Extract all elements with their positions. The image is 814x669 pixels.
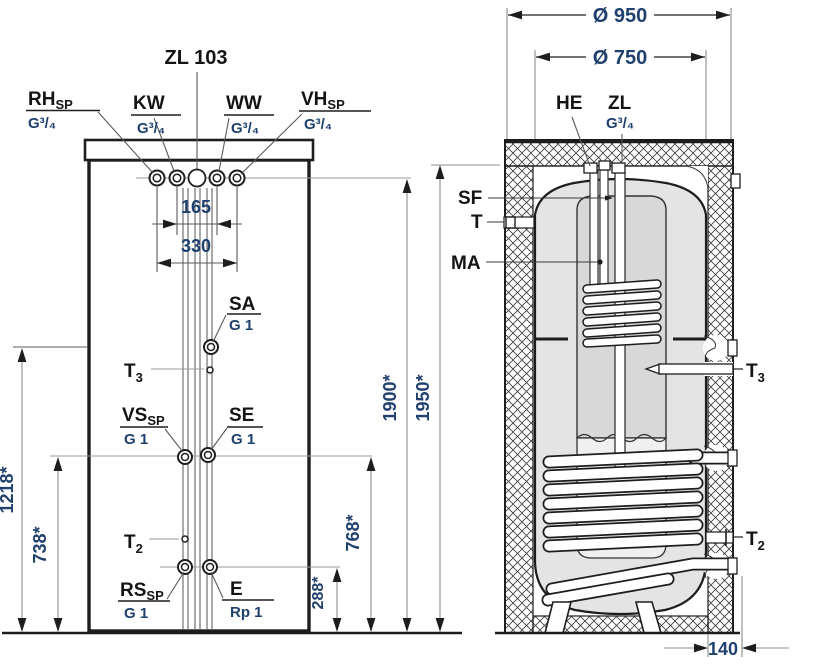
connection-se (201, 448, 215, 462)
dim-738: 738* (30, 526, 50, 563)
dim-140: 140 (708, 639, 738, 659)
connection-sa (204, 340, 218, 354)
dim-330: 330 (181, 236, 211, 256)
front-tank-lid (85, 140, 313, 160)
label-vs-size: G 1 (124, 431, 148, 448)
sensor-t3-front (207, 367, 213, 373)
fitting-coil-top (728, 450, 737, 466)
connection-kw (170, 171, 185, 186)
fitting-mid-right (728, 340, 737, 356)
label-rh-size: G³/₄ (28, 115, 56, 132)
dim-288: 288* (310, 576, 327, 610)
label-rs-size: G 1 (124, 605, 148, 622)
insulation-left (505, 166, 533, 633)
dim-1900: 1900* (380, 374, 400, 421)
label-t2-section: T2 (746, 529, 765, 553)
label-rh-sp: RHSP (28, 89, 73, 112)
connection-rh-sp (150, 171, 165, 186)
label-ww-size: G³/₄ (231, 120, 259, 137)
connection-ww (210, 171, 225, 186)
dim-750: Ø 750 (593, 47, 647, 69)
label-ma: MA (451, 253, 481, 274)
label-vh-sp: VHSP (301, 89, 345, 112)
storage-tank-diagram: ZL 103 RHSP G³/₄ KW G³/₄ WW G³/₄ VHSP G³… (0, 0, 814, 669)
fitting-top-right (731, 174, 740, 188)
label-he: HE (556, 93, 582, 114)
t3-probe (646, 364, 733, 374)
label-se: SE (229, 405, 254, 426)
he-pipe-2 (600, 170, 608, 286)
connection-e (203, 560, 217, 574)
he-pipe-1 (590, 170, 598, 286)
dim-1950: 1950* (413, 374, 433, 421)
dim-950: Ø 950 (593, 5, 647, 27)
label-sf: SF (458, 188, 482, 209)
dim-768: 768* (343, 514, 363, 551)
t-pocket (504, 217, 534, 228)
sensor-t2-front (182, 536, 188, 542)
label-e-size: Rp 1 (230, 604, 263, 621)
label-kw: KW (133, 93, 165, 114)
insulation-top (505, 140, 733, 166)
front-tank-body (89, 160, 309, 631)
dim-165: 165 (181, 197, 211, 217)
fitting-coil-bottom (728, 558, 737, 574)
connection-vs-sp (178, 450, 192, 464)
diagram-canvas: ZL 103 RHSP G³/₄ KW G³/₄ WW G³/₄ VHSP G³… (0, 0, 814, 669)
label-se-size: G 1 (231, 431, 255, 448)
section-view: HE ZL G³/₄ SF T MA T3 T2 Ø (451, 5, 789, 659)
label-kw-size: G³/₄ (137, 120, 165, 137)
label-zl: ZL (608, 93, 632, 114)
label-sa: SA (229, 294, 256, 315)
label-vh-size: G³/₄ (304, 116, 332, 133)
label-t: T (471, 212, 483, 233)
connection-rs-sp (178, 560, 192, 574)
label-zl103: ZL 103 (165, 47, 228, 69)
dim-1218: 1218* (0, 466, 17, 513)
t2-pocket (706, 529, 733, 546)
front-view: ZL 103 RHSP G³/₄ KW G³/₄ WW G³/₄ VHSP G³… (0, 47, 500, 633)
label-ww: WW (226, 93, 262, 114)
label-e: E (230, 579, 243, 600)
label-sa-size: G 1 (229, 317, 253, 334)
connection-zl (189, 170, 206, 187)
label-t3-section: T3 (746, 361, 765, 385)
label-zl-size: G³/₄ (606, 115, 634, 132)
